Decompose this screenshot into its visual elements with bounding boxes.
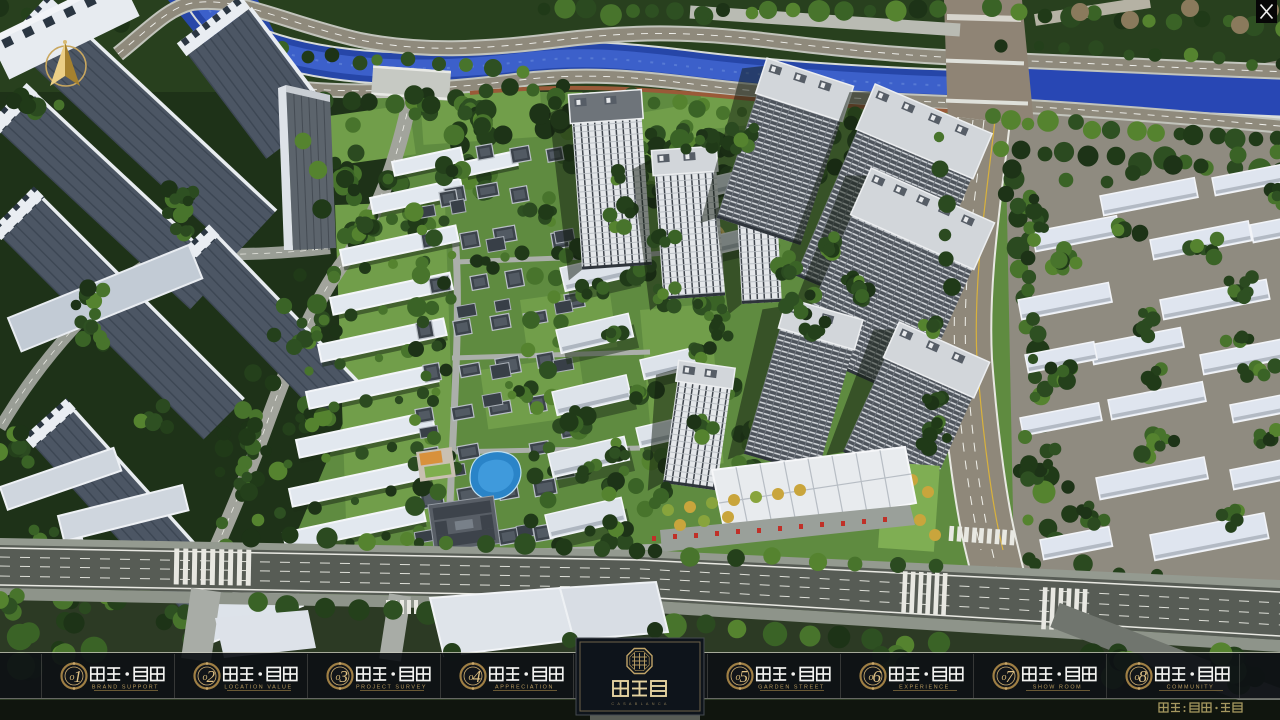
svg-text:1: 1 xyxy=(74,667,83,686)
svg-text:3: 3 xyxy=(339,667,349,686)
svg-text:BRAND SUPPORT: BRAND SUPPORT xyxy=(92,685,159,691)
svg-text:SHOW ROOM: SHOW ROOM xyxy=(1033,685,1082,691)
svg-text:2: 2 xyxy=(207,667,216,686)
svg-text:C A S A B L A N C A: C A S A B L A N C A xyxy=(611,702,667,706)
svg-text:8: 8 xyxy=(1139,667,1148,686)
svg-text:LOCATION VALUE: LOCATION VALUE xyxy=(224,685,292,691)
svg-text:COMMUNITY: COMMUNITY xyxy=(1167,685,1215,691)
svg-text:6: 6 xyxy=(873,667,882,686)
svg-text:PROJECT SURVEY: PROJECT SURVEY xyxy=(356,685,427,691)
svg-text:5: 5 xyxy=(740,667,749,686)
svg-text:GARDEN STREET: GARDEN STREET xyxy=(758,685,825,691)
svg-text:APPRECIATION: APPRECIATION xyxy=(495,685,554,691)
svg-text:EXPERIENCE: EXPERIENCE xyxy=(899,685,950,691)
svg-text:4: 4 xyxy=(473,667,482,686)
